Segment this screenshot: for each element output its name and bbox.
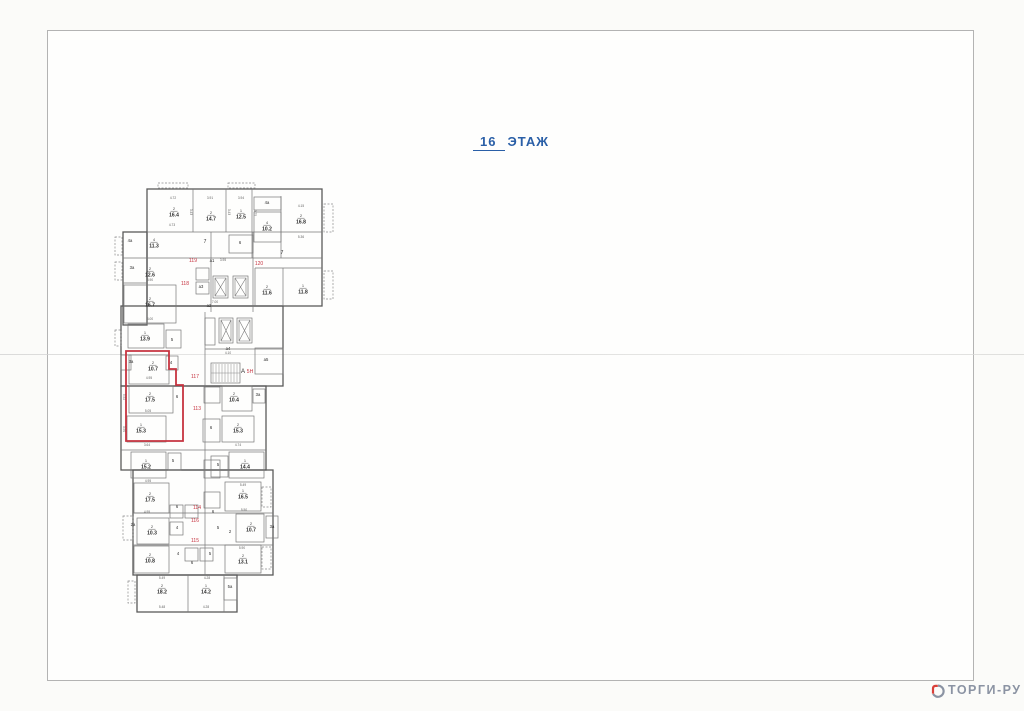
room-name-label: 5 (172, 458, 175, 463)
room-name-label: 2 (229, 529, 232, 534)
balcony-outlines (115, 183, 333, 603)
room-count-label: 1 (140, 423, 142, 427)
dimension-label: 5.36 (298, 235, 304, 239)
room-area-label: 11.6 (262, 291, 272, 297)
room-count-label: 2 (173, 207, 175, 211)
floor-word: ЭТАЖ (507, 134, 549, 149)
room-count-label: 4 (153, 238, 155, 242)
room-name-label: 3а (256, 392, 261, 397)
room-area-label: 16.4 (169, 213, 179, 219)
room-name-label: 3а (130, 265, 135, 270)
room-count-label: 4 (266, 221, 268, 225)
room-name-label: 4 (177, 551, 180, 556)
dimension-label: 4.10 (225, 351, 231, 355)
dimension-label: 3.95 (220, 258, 226, 262)
room-name-label: 2а (131, 522, 136, 527)
dimension-label: 5.49 (159, 576, 165, 580)
highlighted-apartment-outline (126, 351, 183, 441)
dimension-label: 4.00 (147, 317, 153, 321)
room-name-label: 5 (171, 337, 174, 342)
room-name-label: 5 (217, 525, 220, 530)
room-name-label: 6 (210, 425, 213, 430)
room-name-label: 4 (170, 360, 173, 365)
room-count-label: 2 (242, 554, 244, 558)
room-area-label: 14.4 (240, 465, 250, 471)
apartment-number-label: 115 (191, 538, 199, 544)
room-count-label: 2 (161, 584, 163, 588)
dimension-label: 4.28 (204, 576, 210, 580)
room-area-label: 10.3 (147, 531, 157, 537)
room-count-label: 2 (149, 553, 151, 557)
room-name-label: 5а (228, 584, 233, 589)
room-area-label: 16.7 (145, 303, 155, 309)
dimension-label: 3.64 (144, 443, 150, 447)
room-area-label: 18.2 (157, 590, 167, 596)
floor-plan-drawing: 216.4214.7112.5410.2216.8411.3212.6216.7… (0, 0, 1024, 711)
room-area-label: 17.5 (145, 498, 155, 504)
room-count-label: 1 (144, 331, 146, 335)
room-area-label: 10.2 (262, 227, 272, 233)
room-count-label: 1 (244, 459, 246, 463)
dimension-label: 5.48 (159, 605, 165, 609)
dimension-label: 4.95 (145, 479, 151, 483)
room-area-label: 14.7 (206, 217, 216, 223)
room-area-label: 15.3 (233, 429, 243, 435)
room-name-label: 7 (281, 250, 284, 256)
room-area-label: 15.2 (141, 465, 151, 471)
room-count-label: 2 (210, 211, 212, 215)
room-count-label: 2 (151, 525, 153, 529)
room-count-label: 2 (149, 392, 151, 396)
room-count-label: 1 (240, 209, 242, 213)
dimension-label: 5.52 (122, 394, 126, 400)
dimension-label: 5.49 (240, 483, 246, 487)
apartment-number-label: 120 (255, 261, 264, 267)
dimension-label: 3.50 (122, 426, 126, 432)
apartment-number-label: 113 (193, 406, 201, 412)
room-area-label: 10.7 (148, 367, 158, 373)
room-area-label: 11.3 (149, 244, 159, 250)
dimension-label: 3.94 (238, 196, 244, 200)
room-name-label: а3 (199, 284, 204, 289)
room-count-label: 2 (149, 492, 151, 496)
room-area-label: 10.7 (246, 528, 256, 534)
room-name-label: а1 (210, 258, 215, 263)
room-count-label: 2 (149, 297, 151, 301)
dimension-label: 3.90 (147, 278, 153, 282)
room-count-label: 2 (300, 214, 302, 218)
floor-title: 16ЭТАЖ (473, 134, 549, 151)
dimension-label: 3.43 (227, 209, 231, 215)
room-count-label: 1 (205, 584, 207, 588)
room-area-label: 16.8 (296, 220, 306, 226)
room-name-label: 6 (176, 394, 179, 399)
watermark-text: ТОРГИ-РУ (948, 683, 1022, 697)
room-area-label: 10.8 (145, 559, 155, 565)
room-area-label: 15.3 (136, 429, 146, 435)
dimension-label: 4.95 (144, 510, 150, 514)
room-name-label: 3а (270, 524, 275, 529)
room-count-label: 2 (266, 285, 268, 289)
room-area-label: 14.2 (201, 590, 211, 596)
dimension-label: 4.72 (170, 196, 176, 200)
apartment-number-label: 117 (191, 374, 199, 380)
room-area-label: 10.4 (229, 398, 239, 404)
room-name-label: 4а (265, 200, 270, 205)
room-name-label: 7 (204, 239, 207, 245)
dimension-label: 4.28 (203, 605, 209, 609)
dimension-label: 5.50 (241, 508, 247, 512)
dimension-label: 4.95 (146, 376, 152, 380)
room-name-label: 5 (209, 551, 212, 556)
room-area-label: 11.8 (298, 290, 308, 296)
apartment-number-label: 118 (181, 281, 189, 287)
room-count-label: 1 (302, 284, 304, 288)
dimension-label: 3.75 (253, 210, 257, 216)
apartment-number-label: 5Н (247, 369, 254, 375)
room-count-label: 2 (233, 392, 235, 396)
room-name-label: А (241, 369, 245, 375)
room-name-label: 4 (176, 525, 179, 530)
room-count-label: 1 (145, 459, 147, 463)
staircase-hatching (211, 364, 240, 382)
room-area-label: 16.5 (238, 495, 248, 501)
apartment-number-label: 116 (191, 518, 199, 524)
dimension-label: 4.74 (235, 443, 241, 447)
dimension-label: 4.73 (169, 223, 175, 227)
apartment-number-label: 119 (189, 258, 197, 264)
room-count-label: 2 (237, 423, 239, 427)
torgi-ru-watermark[interactable]: ТОРГИ-РУ (928, 681, 1022, 698)
room-area-label: 12.5 (236, 215, 246, 221)
room-name-label: 4а (128, 238, 133, 243)
dimension-label: 4.15 (298, 204, 304, 208)
room-area-label: 13.1 (238, 560, 248, 566)
room-count-label: 2 (152, 361, 154, 365)
torgi-ru-logo-icon (928, 681, 945, 698)
room-count-label: 2 (250, 522, 252, 526)
room-name-label: 3а (129, 359, 134, 364)
room-count-label: 2 (149, 267, 151, 271)
dimension-label: 3.43 (189, 209, 193, 215)
room-area-label: 17.5 (145, 398, 155, 404)
apartment-number-label: 114 (193, 505, 201, 511)
floor-number: 16 (473, 134, 505, 151)
dimension-label: 5.05 (145, 409, 151, 413)
room-count-label: 1 (242, 489, 244, 493)
room-name-label: а5 (264, 357, 269, 362)
dimension-label: 3.91 (207, 196, 213, 200)
dimension-label: 7.00 (212, 300, 218, 304)
dimension-label: 5.90 (239, 546, 245, 550)
elevator-shafts (215, 278, 250, 341)
room-name-label: 5 (217, 462, 220, 467)
room-name-label: 6 (239, 240, 242, 245)
room-area-label: 13.9 (140, 337, 150, 343)
